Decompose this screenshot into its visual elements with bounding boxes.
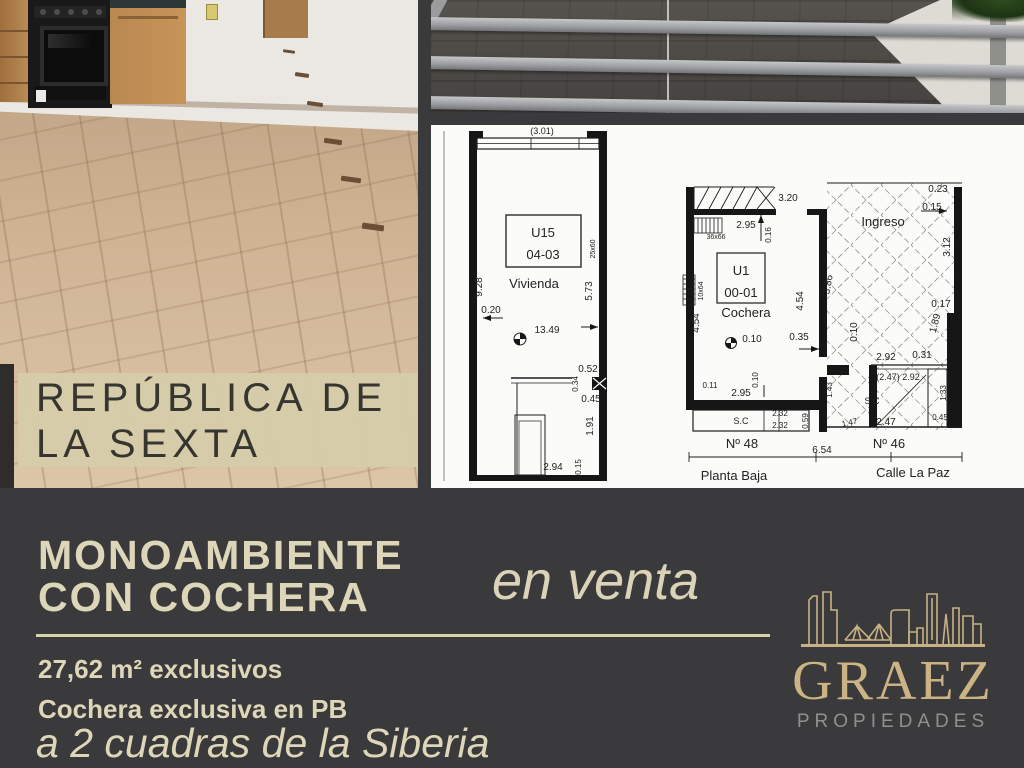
- svg-text:0.17: 0.17: [931, 299, 951, 310]
- stove-tag: [36, 90, 46, 102]
- stove-knobs: [34, 6, 106, 18]
- svg-text:0.15: 0.15: [574, 459, 583, 475]
- svg-text:4.54: 4.54: [691, 313, 702, 333]
- garage-photo: [431, 0, 1024, 113]
- listing-title: MONOAMBIENTE CON COCHERA: [38, 534, 404, 618]
- svg-text:0.45: 0.45: [932, 413, 948, 422]
- svg-text:0.52: 0.52: [578, 364, 598, 375]
- photo-shadow-edge: [0, 364, 14, 488]
- benchmark-symbol: [726, 338, 737, 349]
- svg-text:2.47: 2.47: [876, 417, 896, 428]
- svg-text:0.16: 0.16: [764, 227, 773, 243]
- svg-text:0.59: 0.59: [801, 413, 810, 429]
- svg-text:2.94: 2.94: [543, 462, 563, 473]
- listing-title-line2: CON COCHERA: [38, 576, 404, 618]
- svg-text:Vivienda: Vivienda: [509, 276, 559, 291]
- skyline-icon: [793, 584, 993, 650]
- kitchen-cabinet-mid: [110, 8, 186, 104]
- svg-text:0.23: 0.23: [928, 184, 948, 195]
- wall-outlet: [206, 4, 218, 20]
- svg-text:0.31: 0.31: [912, 350, 932, 361]
- svg-text:Ingreso: Ingreso: [861, 214, 904, 229]
- svg-text:Calle La Paz: Calle La Paz: [876, 465, 950, 480]
- svg-text:2.92: 2.92: [876, 352, 896, 363]
- svg-text:9.28: 9.28: [474, 277, 485, 297]
- gate-cable: [667, 0, 669, 113]
- svg-text:00-01: 00-01: [724, 285, 757, 300]
- svg-text:(2.47) 2.92: (2.47) 2.92: [876, 372, 920, 382]
- benchmark-symbol: [514, 333, 526, 345]
- svg-text:4.54: 4.54: [795, 291, 806, 311]
- wood-door: [263, 0, 308, 38]
- svg-text:0.34: 0.34: [571, 376, 580, 392]
- svg-text:2.95: 2.95: [731, 388, 751, 399]
- brand-logo: GRAEZ PROPIEDADES: [790, 584, 996, 733]
- svg-text:0.11: 0.11: [703, 381, 719, 390]
- svg-text:Cochera: Cochera: [721, 305, 771, 320]
- location-banner: REPÚBLICA DE LA SEXTA: [18, 373, 418, 467]
- kitchen-cabinet-left: [0, 0, 30, 102]
- svg-text:0.10: 0.10: [751, 372, 760, 388]
- svg-text:S.C: S.C: [733, 416, 749, 426]
- wall-column: [186, 0, 264, 92]
- flyer-canvas: REPÚBLICA DE LA SEXTA: [0, 0, 1024, 768]
- svg-text:U1: U1: [733, 263, 750, 278]
- location-tagline: a 2 cuadras de la Siberia: [36, 720, 490, 767]
- stove: [28, 0, 112, 108]
- svg-text:3.20: 3.20: [778, 193, 798, 204]
- window-comb-top: [694, 218, 722, 233]
- location-line2: LA SEXTA: [36, 421, 418, 467]
- svg-text:0.45: 0.45: [581, 394, 601, 405]
- feature-area: 27,62 m² exclusivos: [38, 654, 282, 685]
- floorplan-panel: (3.01)U1504-03Vivienda9.285.7325x600.201…: [431, 125, 1024, 488]
- svg-text:0.10: 0.10: [849, 322, 860, 342]
- svg-text:Planta Baja: Planta Baja: [701, 468, 768, 483]
- svg-text:U15: U15: [531, 225, 555, 240]
- svg-text:S.C: S.C: [864, 396, 880, 406]
- svg-text:13.49: 13.49: [534, 325, 559, 336]
- floorplan-svg: (3.01)U1504-03Vivienda9.285.7325x600.201…: [431, 125, 1024, 488]
- brand-name: GRAEZ: [790, 653, 996, 709]
- svg-text:36x66: 36x66: [706, 234, 725, 241]
- svg-text:Nº 48: Nº 48: [726, 436, 758, 451]
- svg-text:1.91: 1.91: [585, 416, 596, 436]
- oven-window: [40, 26, 108, 86]
- svg-text:0.15: 0.15: [922, 202, 942, 213]
- svg-text:04-03: 04-03: [526, 247, 559, 262]
- floor-vent: [283, 49, 295, 54]
- svg-text:2.95: 2.95: [736, 220, 756, 231]
- divider-rule: [36, 634, 770, 637]
- sale-status: en venta: [492, 550, 699, 612]
- brand-subtitle: PROPIEDADES: [790, 711, 996, 733]
- plants: [952, 0, 1024, 22]
- svg-text:2.32: 2.32: [772, 421, 788, 430]
- floor-vent: [295, 72, 309, 78]
- svg-text:5.73: 5.73: [584, 281, 595, 301]
- svg-text:1.43: 1.43: [825, 382, 834, 398]
- svg-text:0.20: 0.20: [481, 305, 501, 316]
- svg-text:0.10: 0.10: [742, 334, 762, 345]
- svg-text:6.54: 6.54: [812, 445, 832, 456]
- svg-text:1.33: 1.33: [939, 385, 948, 401]
- svg-text:3.12: 3.12: [942, 237, 953, 257]
- listing-title-line1: MONOAMBIENTE: [38, 534, 404, 576]
- svg-text:10x64: 10x64: [698, 281, 705, 300]
- svg-text:(3.01): (3.01): [530, 126, 554, 136]
- svg-text:2.32: 2.32: [772, 409, 788, 418]
- svg-text:Nº 46: Nº 46: [873, 436, 905, 451]
- svg-text:0.35: 0.35: [789, 332, 809, 343]
- location-line1: REPÚBLICA DE: [36, 375, 418, 421]
- svg-text:25x60: 25x60: [590, 239, 597, 258]
